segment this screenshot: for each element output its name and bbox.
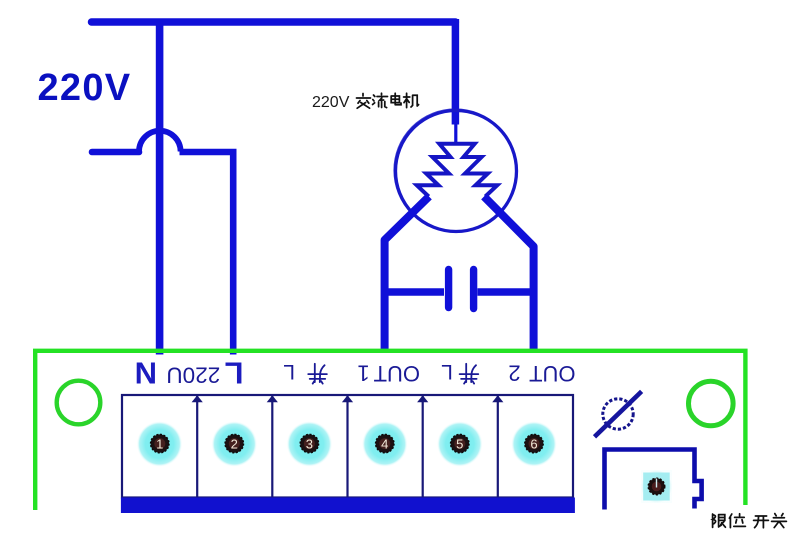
svg-text:1: 1 — [357, 361, 369, 386]
svg-text:6: 6 — [530, 436, 537, 451]
svg-text:220U: 220U — [166, 363, 220, 388]
svg-text:220V: 220V — [38, 67, 132, 109]
svg-text:2: 2 — [508, 361, 520, 386]
svg-text:3: 3 — [306, 436, 313, 451]
svg-text:1: 1 — [156, 436, 163, 451]
svg-text:5: 5 — [456, 436, 463, 451]
svg-text:N: N — [135, 356, 157, 391]
svg-text:220V: 220V — [312, 94, 350, 111]
svg-text:L: L — [283, 360, 295, 383]
svg-text:4: 4 — [381, 436, 388, 451]
svg-text:2: 2 — [231, 436, 238, 451]
svg-text:OUT: OUT — [374, 361, 420, 386]
svg-text:L: L — [225, 356, 244, 391]
svg-text:L: L — [441, 360, 453, 383]
svg-text:OUT: OUT — [529, 361, 575, 386]
